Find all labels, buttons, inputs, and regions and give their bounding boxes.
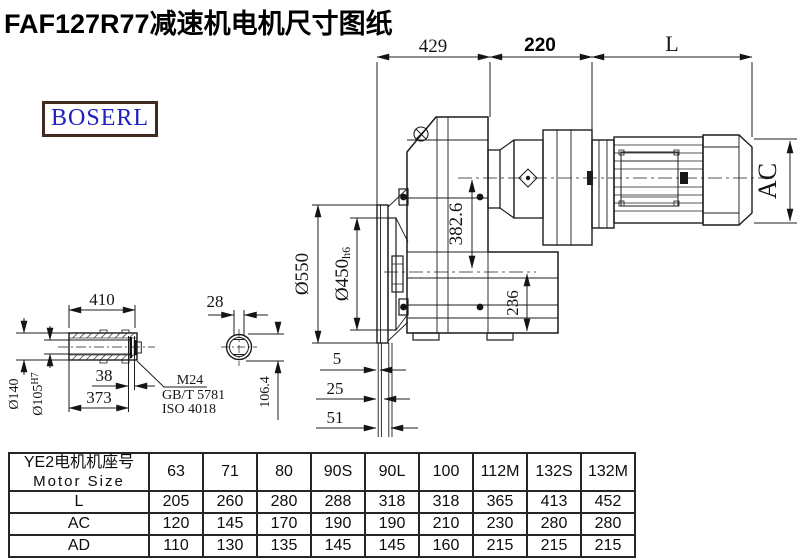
motor-side-view xyxy=(587,135,752,228)
table-cell: 135 xyxy=(257,535,311,557)
dim-429: 429 xyxy=(419,36,448,57)
col-header: 71 xyxy=(203,453,257,491)
table-row-AC: AC 120 145 170 190 190 210 230 280 280 xyxy=(9,513,635,535)
table-cell: 205 xyxy=(149,491,203,513)
table-cell: 288 xyxy=(311,491,365,513)
col-header: 132S xyxy=(527,453,581,491)
dim-offset-25: 25 xyxy=(327,379,344,398)
dim-28: 28 xyxy=(207,292,224,311)
output-flange xyxy=(377,188,408,437)
top-dimensions xyxy=(377,57,752,205)
dim-38: 38 xyxy=(96,366,113,385)
table-cell: 145 xyxy=(311,535,365,557)
table-row-L: L 205 260 280 288 318 318 365 413 452 xyxy=(9,491,635,513)
dim-offset-5: 5 xyxy=(333,349,342,368)
dim-flange-pilot: Ø450h6 xyxy=(332,247,353,301)
col-header: 100 xyxy=(419,453,473,491)
table-cell: 130 xyxy=(203,535,257,557)
row-label: AC xyxy=(9,513,149,535)
gearbox-housing xyxy=(399,117,558,340)
row-label: AD xyxy=(9,535,149,557)
col-header: 80 xyxy=(257,453,311,491)
side-dimensions xyxy=(312,139,797,428)
col-header: 90L xyxy=(365,453,419,491)
table-row-AD: AD 110 130 135 145 145 160 215 215 215 xyxy=(9,535,635,557)
dim-373: 373 xyxy=(86,388,112,407)
table-header-motor-size: YE2电机机座号 Motor Size xyxy=(9,453,149,491)
table-cell: 318 xyxy=(419,491,473,513)
dim-L: L xyxy=(665,31,678,56)
table-cell: 145 xyxy=(365,535,419,557)
dim-flange-od: Ø550 xyxy=(292,253,313,295)
fan-cover xyxy=(703,135,752,225)
table-cell: 110 xyxy=(149,535,203,557)
table-cell: 190 xyxy=(311,513,365,535)
technical-drawing: 429 220 L xyxy=(0,0,800,450)
table-cell: 230 xyxy=(473,513,527,535)
table-cell: 145 xyxy=(203,513,257,535)
drawing-page: FAF127R77减速机电机尺寸图纸 BOSERL 429 220 L xyxy=(0,0,800,557)
table-cell: 452 xyxy=(581,491,635,513)
table-cell: 190 xyxy=(365,513,419,535)
dim-axis-distance: 382.6 xyxy=(446,203,467,246)
table-cell: 260 xyxy=(203,491,257,513)
bolt-std-iso: ISO 4018 xyxy=(162,402,216,417)
table-cell: 215 xyxy=(527,535,581,557)
row-label: L xyxy=(9,491,149,513)
dim-hub-od: Ø140 xyxy=(7,378,22,409)
table-cell: 215 xyxy=(473,535,527,557)
table-cell: 210 xyxy=(419,513,473,535)
col-header: 132M xyxy=(581,453,635,491)
header-cn: YE2电机机座号 xyxy=(10,454,148,472)
motor-size-table: YE2电机机座号 Motor Size 63 71 80 90S 90L 100… xyxy=(8,452,636,558)
dim-106: 106.4 xyxy=(258,376,273,408)
header-en: Motor Size xyxy=(10,473,148,490)
table-cell: 120 xyxy=(149,513,203,535)
bolt-std-gb: GB/T 5781 xyxy=(162,388,225,403)
table-cell: 280 xyxy=(527,513,581,535)
dim-offset-51: 51 xyxy=(327,408,344,427)
shaft-section-view xyxy=(221,329,257,366)
dim-bore: Ø105H7 xyxy=(30,372,46,415)
table-cell: 365 xyxy=(473,491,527,513)
col-header: 112M xyxy=(473,453,527,491)
dim-below-axis: 236 xyxy=(503,290,522,316)
col-header: 63 xyxy=(149,453,203,491)
dim-motor-diameter: AC xyxy=(753,163,782,199)
table-cell: 170 xyxy=(257,513,311,535)
table-cell: 280 xyxy=(581,513,635,535)
dim-220: 220 xyxy=(524,35,556,56)
table-cell: 413 xyxy=(527,491,581,513)
table-cell: 215 xyxy=(581,535,635,557)
dim-410: 410 xyxy=(89,290,115,309)
shaft-detail-view xyxy=(58,330,155,363)
bolt-spec: M24 xyxy=(177,373,203,388)
table-cell: 280 xyxy=(257,491,311,513)
table-cell: 160 xyxy=(419,535,473,557)
col-header: 90S xyxy=(311,453,365,491)
input-adapter xyxy=(488,130,592,245)
table-cell: 318 xyxy=(365,491,419,513)
